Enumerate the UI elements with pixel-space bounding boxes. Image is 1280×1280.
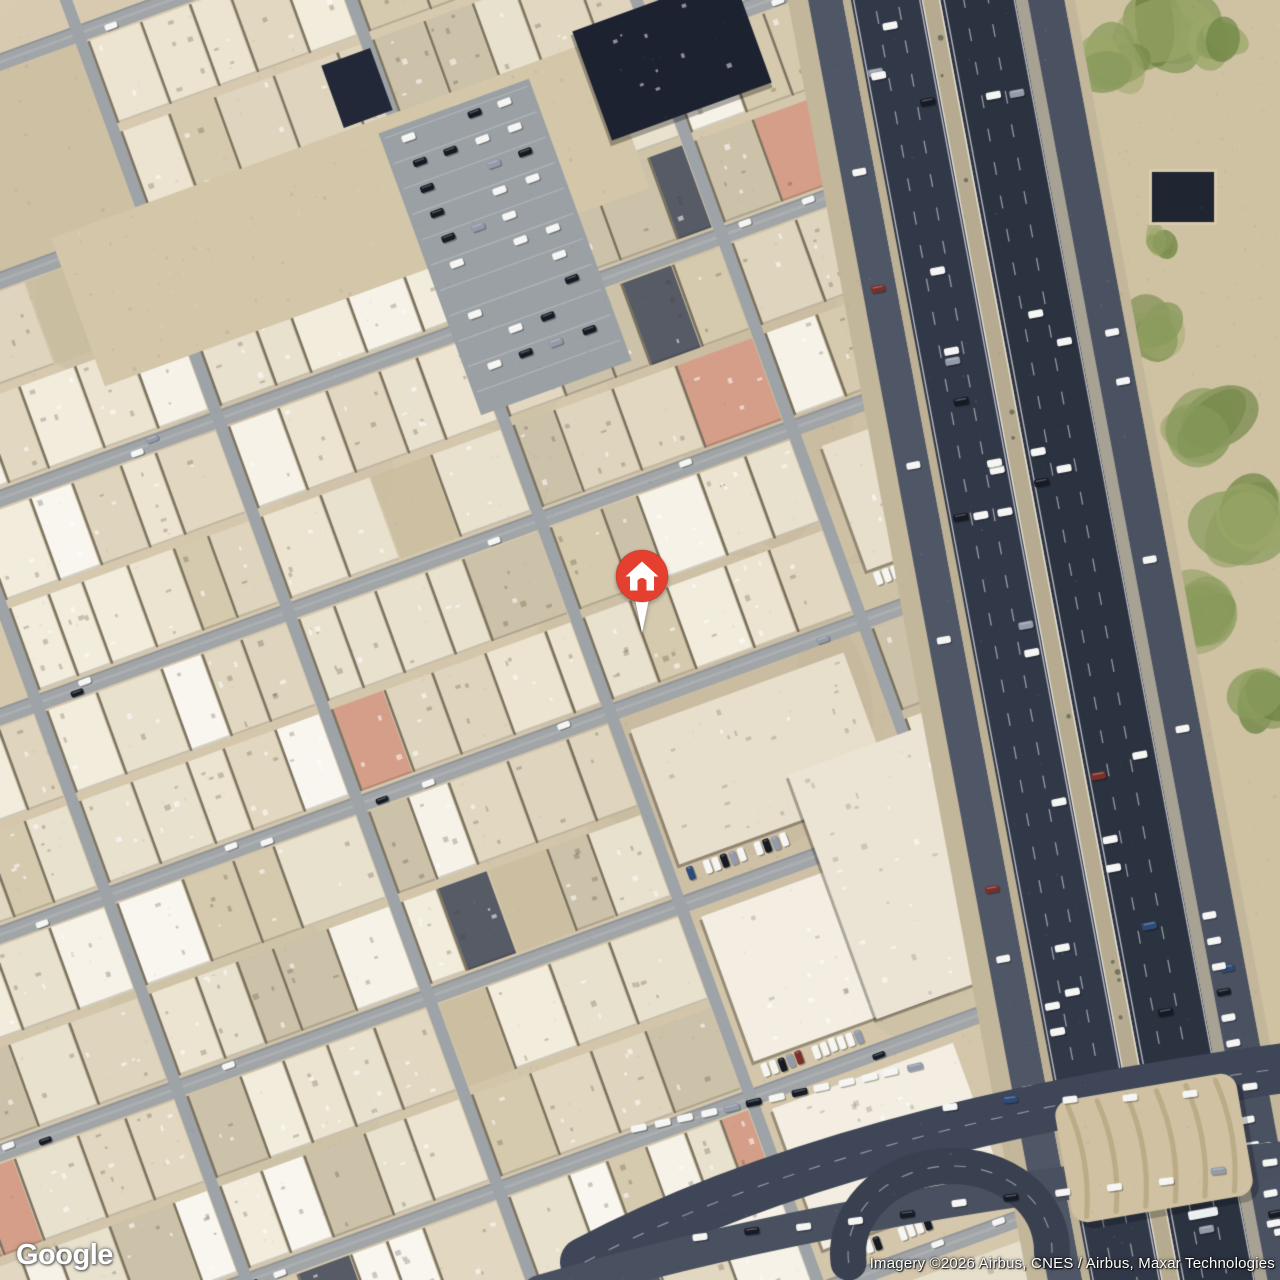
google-logo[interactable]: Google (16, 1239, 113, 1272)
home-location-marker[interactable] (614, 549, 670, 635)
imagery-attribution: Imagery ©2026 Airbus, CNES / Airbus, Max… (870, 1255, 1275, 1272)
map-viewport: Google Imagery ©2026 Airbus, CNES / Airb… (0, 0, 1280, 1280)
marker-stem (635, 599, 649, 633)
satellite-imagery-canvas[interactable] (0, 0, 1280, 1280)
